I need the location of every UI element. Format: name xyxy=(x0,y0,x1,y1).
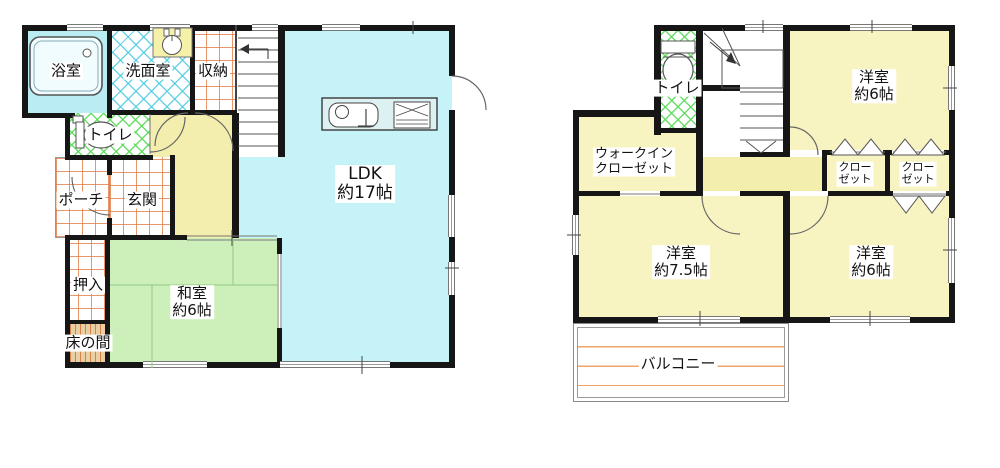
label-storage: 収納 xyxy=(196,63,230,80)
wall xyxy=(696,25,703,196)
room-name: 洋室 xyxy=(859,68,889,86)
wall xyxy=(740,152,783,157)
label-closet-b: クロー ゼット xyxy=(900,162,937,187)
label-washroom: 洗面室 xyxy=(123,63,172,80)
room-name2: ゼット xyxy=(839,174,872,186)
wall xyxy=(885,155,890,191)
wall xyxy=(946,191,955,196)
room-name: クロー xyxy=(902,161,935,174)
room-size: 約17帖 xyxy=(337,184,393,203)
room-name: クロー xyxy=(839,161,872,174)
wall xyxy=(740,191,783,196)
window xyxy=(830,316,910,323)
room-name: ウォークイン xyxy=(595,146,673,161)
label-entrance: 玄関 xyxy=(125,192,159,209)
window xyxy=(322,24,360,31)
window xyxy=(280,361,390,368)
window xyxy=(143,361,207,368)
room-name: 和室 xyxy=(177,284,207,302)
label-bathroom: 浴室 xyxy=(49,63,83,80)
window xyxy=(572,215,579,255)
label-bedroom-southeast: 洋室 約6帖 xyxy=(849,245,893,279)
window xyxy=(448,195,455,237)
room-name: LDK xyxy=(348,164,382,184)
label-balcony: バルコニー xyxy=(639,356,718,373)
room-name2: ゼット xyxy=(902,174,935,186)
label-walk-in-closet: ウォークイン クローゼット xyxy=(593,147,675,176)
wall xyxy=(573,191,620,196)
label-alcove: 床の間 xyxy=(63,335,112,352)
label-bedroom-southwest: 洋室 約7.5帖 xyxy=(652,245,710,279)
wall xyxy=(660,191,702,196)
window xyxy=(67,24,103,31)
room-size: 約6帖 xyxy=(172,302,212,319)
label-toilet-2f: トイレ xyxy=(652,80,701,97)
room-size: 約7.5帖 xyxy=(654,262,708,279)
room-name: 洋室 xyxy=(666,244,696,262)
window xyxy=(948,218,955,283)
room-toilet-2f xyxy=(660,27,696,128)
hall-2f xyxy=(703,157,822,191)
label-closet-a: クロー ゼット xyxy=(837,162,874,187)
wall xyxy=(783,191,790,323)
window xyxy=(745,24,783,31)
label-japanese-room: 和室 約6帖 xyxy=(170,285,214,319)
window xyxy=(850,24,912,31)
wall xyxy=(822,155,827,191)
label-bedroom-north: 洋室 約6帖 xyxy=(852,69,896,103)
room-name2: クローゼット xyxy=(595,162,673,177)
label-futon-closet: 押入 xyxy=(71,277,105,294)
window xyxy=(448,262,455,295)
wall xyxy=(828,191,893,196)
label-toilet-1f: トイレ xyxy=(85,127,134,144)
wall xyxy=(783,25,790,157)
wall xyxy=(702,85,740,91)
room-size: 約6帖 xyxy=(854,86,894,103)
wall xyxy=(654,128,703,133)
room-size: 約6帖 xyxy=(851,262,891,279)
label-ldk: LDK 約17帖 xyxy=(335,165,395,203)
floorplan-canvas: 浴室 洗面室 収納 トイレ ポーチ 玄関 押入 床の間 和室 約6帖 LDK 約… xyxy=(0,0,1000,468)
label-porch: ポーチ xyxy=(56,192,105,209)
window xyxy=(948,66,955,110)
window xyxy=(252,24,278,31)
wall xyxy=(944,150,954,155)
wall xyxy=(573,110,661,117)
balcony-door xyxy=(658,316,740,323)
staircase-2f xyxy=(703,27,783,157)
room-name: 洋室 xyxy=(856,244,886,262)
window xyxy=(150,24,190,31)
